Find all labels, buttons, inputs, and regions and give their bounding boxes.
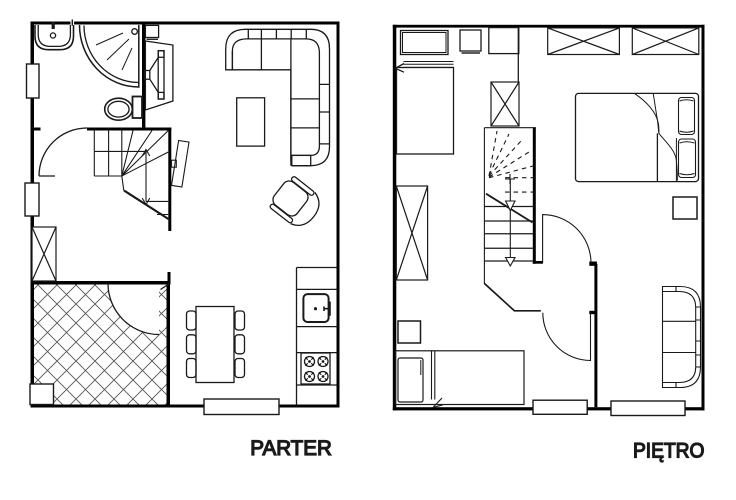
svg-text:PARTER: PARTER — [250, 437, 331, 460]
svg-text:PIĘTRO: PIĘTRO — [633, 440, 705, 463]
